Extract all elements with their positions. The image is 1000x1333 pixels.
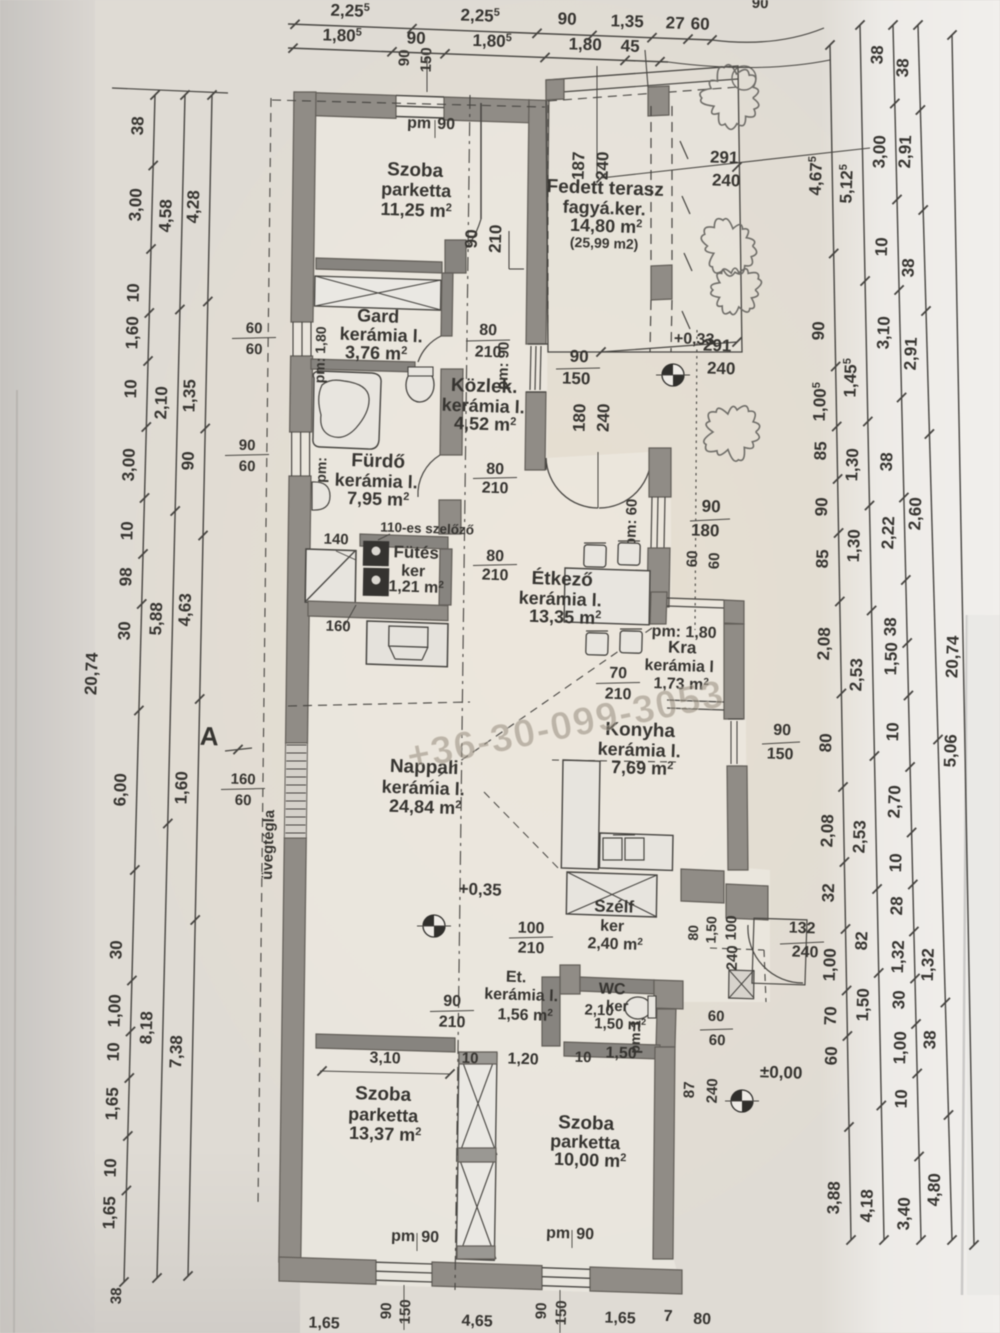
svg-text:1,35: 1,35 (179, 379, 199, 413)
svg-text:2,22: 2,22 (878, 516, 898, 550)
svg-text:10: 10 (104, 1042, 124, 1062)
svg-text:80: 80 (693, 1311, 711, 1329)
svg-text:80: 80 (486, 548, 504, 566)
svg-text:pm: 1,80: pm: 1,80 (311, 326, 329, 384)
svg-text:80: 80 (479, 322, 497, 340)
svg-text:1,32: 1,32 (888, 940, 908, 974)
svg-text:3,76 m2: 3,76 m2 (345, 342, 408, 364)
svg-text:2,08: 2,08 (817, 814, 837, 848)
svg-text:85: 85 (811, 441, 831, 461)
svg-text:10: 10 (891, 1089, 911, 1109)
svg-text:90: 90 (239, 437, 256, 455)
svg-text:1,50: 1,50 (881, 642, 901, 676)
svg-text:60: 60 (246, 320, 263, 338)
svg-text:2,91: 2,91 (901, 337, 921, 371)
svg-text:1,00: 1,00 (890, 1031, 910, 1065)
svg-text:2,10: 2,10 (151, 386, 171, 420)
svg-text:1,60: 1,60 (171, 771, 191, 805)
svg-text:20,74: 20,74 (942, 635, 962, 679)
svg-text:10: 10 (462, 1050, 479, 1068)
svg-text:1,30: 1,30 (844, 529, 864, 563)
svg-text:11,25 m2: 11,25 m2 (380, 199, 452, 221)
svg-text:1,32: 1,32 (918, 948, 938, 982)
svg-text:150: 150 (562, 369, 591, 389)
svg-text:60: 60 (706, 552, 724, 569)
svg-text:(25,99 m2): (25,99 m2) (570, 234, 639, 252)
svg-text:70: 70 (821, 1006, 841, 1026)
svg-text:70: 70 (609, 665, 627, 683)
svg-text:90: 90 (443, 993, 461, 1011)
svg-text:1,65: 1,65 (102, 1087, 122, 1121)
svg-text:2,08: 2,08 (814, 627, 834, 661)
svg-text:pm: pm (407, 115, 432, 133)
svg-text:60: 60 (684, 550, 702, 567)
svg-text:2,60: 2,60 (905, 497, 925, 531)
svg-text:150: 150 (397, 1299, 415, 1325)
svg-text:WC: WC (599, 981, 627, 999)
svg-text:Fütés: Fütés (393, 542, 439, 562)
svg-text:210: 210 (482, 567, 509, 585)
svg-text:10: 10 (117, 521, 137, 541)
svg-text:5,06: 5,06 (940, 734, 960, 768)
svg-text:2,70: 2,70 (884, 785, 904, 819)
svg-text:A: A (199, 721, 219, 752)
svg-text:80: 80 (685, 925, 702, 941)
svg-text:10: 10 (101, 1158, 121, 1178)
svg-text:1,80: 1,80 (568, 34, 602, 54)
svg-text:pm:: pm: (313, 457, 330, 483)
svg-text:1,00: 1,00 (105, 994, 125, 1028)
svg-text:85: 85 (813, 549, 833, 569)
svg-text:160: 160 (230, 771, 256, 789)
svg-text:4,18: 4,18 (857, 1189, 877, 1223)
svg-text:210: 210 (518, 940, 545, 958)
svg-text:45: 45 (620, 36, 640, 56)
svg-text:90: 90 (752, 0, 769, 12)
svg-text:Et.: Et. (506, 969, 527, 987)
svg-text:2,91: 2,91 (895, 135, 915, 169)
svg-text:82: 82 (852, 931, 872, 951)
svg-text:1,65: 1,65 (99, 1196, 119, 1230)
svg-text:+0,33: +0,33 (674, 330, 715, 348)
svg-text:60: 60 (246, 341, 263, 359)
svg-text:87: 87 (681, 1081, 699, 1098)
svg-text:38: 38 (893, 58, 913, 78)
svg-text:27: 27 (665, 13, 685, 33)
svg-text:60: 60 (239, 458, 256, 476)
svg-text:240: 240 (792, 944, 819, 962)
svg-text:60: 60 (708, 1008, 725, 1026)
svg-text:90: 90 (178, 451, 198, 471)
svg-text:240: 240 (724, 945, 742, 971)
svg-text:1,50: 1,50 (853, 988, 873, 1022)
svg-text:90: 90 (462, 229, 482, 249)
svg-text:38: 38 (877, 452, 897, 472)
svg-text:2,53: 2,53 (846, 658, 866, 692)
svg-text:Kra: Kra (668, 638, 698, 658)
svg-text:3,40: 3,40 (894, 1197, 914, 1231)
svg-text:210: 210 (439, 1014, 466, 1032)
svg-text:38: 38 (867, 45, 887, 65)
svg-text:10: 10 (883, 722, 903, 742)
svg-text:pm: pm (546, 1225, 571, 1243)
svg-text:210: 210 (486, 224, 506, 253)
svg-text:1,20: 1,20 (507, 1050, 539, 1068)
svg-text:100: 100 (723, 915, 741, 941)
svg-text:+0,35: +0,35 (458, 879, 502, 899)
svg-text:38: 38 (920, 1030, 940, 1050)
svg-text:30: 30 (115, 621, 135, 641)
svg-text:80: 80 (486, 461, 504, 479)
svg-text:2,53: 2,53 (849, 820, 869, 854)
svg-text:4,65: 4,65 (461, 1312, 493, 1330)
svg-text:Szélf: Szélf (594, 896, 635, 916)
svg-text:30: 30 (889, 990, 909, 1010)
svg-text:90: 90 (406, 28, 426, 48)
svg-text:60: 60 (821, 1046, 841, 1066)
svg-text:30: 30 (106, 940, 126, 960)
svg-text:180: 180 (691, 521, 720, 541)
svg-text:90: 90 (533, 1302, 551, 1319)
svg-text:240: 240 (707, 359, 736, 379)
svg-text:10: 10 (123, 283, 143, 303)
svg-text:240: 240 (704, 1078, 722, 1104)
svg-text:180: 180 (570, 403, 590, 432)
svg-text:ker: ker (600, 918, 625, 936)
svg-text:132: 132 (789, 920, 816, 938)
svg-text:291: 291 (710, 148, 739, 168)
svg-text:38: 38 (128, 116, 148, 136)
svg-text:Szoba: Szoba (355, 1083, 412, 1106)
svg-text:4,28: 4,28 (183, 190, 203, 224)
svg-text:3,00: 3,00 (126, 188, 146, 222)
svg-text:pm: 60: pm: 60 (622, 498, 641, 547)
svg-text:150: 150 (767, 746, 794, 764)
svg-text:1,30: 1,30 (842, 448, 862, 482)
svg-text:7,95 m2: 7,95 m2 (347, 488, 410, 510)
svg-text:110-es szelőző: 110-es szelőző (380, 519, 474, 537)
svg-text:90: 90 (812, 497, 832, 517)
svg-text:kerámia l: kerámia l (644, 657, 714, 676)
svg-text:±0,00: ±0,00 (760, 1062, 803, 1082)
svg-text:38: 38 (898, 258, 918, 278)
svg-text:28: 28 (887, 896, 907, 916)
svg-text:24,84 m2: 24,84 m2 (389, 796, 462, 818)
svg-text:5,88: 5,88 (146, 602, 166, 636)
svg-text:3,00: 3,00 (869, 135, 889, 169)
svg-text:4,58: 4,58 (156, 199, 176, 233)
svg-text:60: 60 (235, 792, 252, 810)
svg-text:1,35: 1,35 (610, 11, 644, 31)
svg-text:8,18: 8,18 (136, 1011, 156, 1045)
svg-text:13,35 m2: 13,35 m2 (529, 606, 602, 628)
svg-text:3,10: 3,10 (369, 1049, 401, 1067)
svg-text:1,21 m2: 1,21 m2 (388, 578, 444, 597)
svg-text:1,60: 1,60 (122, 316, 142, 350)
svg-text:10: 10 (121, 379, 141, 399)
svg-text:90: 90 (421, 1229, 439, 1247)
svg-text:10,00 m2: 10,00 m2 (554, 1149, 627, 1171)
svg-text:7,38: 7,38 (166, 1035, 186, 1069)
svg-text:pm: pm (391, 1228, 416, 1246)
svg-text:13,37 m2: 13,37 m2 (349, 1123, 422, 1145)
svg-text:210: 210 (482, 480, 509, 498)
svg-text:90: 90 (576, 1226, 594, 1244)
svg-text:1,65: 1,65 (308, 1314, 340, 1332)
svg-text:parketta: parketta (381, 179, 453, 201)
svg-text:2,40 m2: 2,40 m2 (587, 935, 643, 954)
svg-text:90: 90 (437, 116, 455, 134)
svg-text:7: 7 (663, 1308, 673, 1325)
svg-text:90: 90 (701, 497, 721, 517)
svg-text:10: 10 (886, 853, 906, 873)
svg-text:4,80: 4,80 (924, 1173, 944, 1207)
svg-text:3,88: 3,88 (824, 1181, 844, 1215)
svg-text:1,56 m2: 1,56 m2 (497, 1006, 553, 1025)
svg-text:1,50: 1,50 (703, 916, 720, 944)
svg-text:3,00: 3,00 (119, 448, 139, 482)
svg-text:6,00: 6,00 (110, 773, 130, 807)
svg-text:90: 90 (557, 9, 577, 29)
svg-text:3,10: 3,10 (874, 316, 894, 350)
svg-text:90: 90 (809, 321, 829, 341)
svg-text:90: 90 (569, 347, 589, 367)
svg-text:7,69 m2: 7,69 m2 (611, 757, 674, 779)
svg-text:240: 240 (712, 171, 741, 191)
svg-text:pm: 90: pm: 90 (494, 341, 513, 390)
svg-text:20,74: 20,74 (81, 652, 101, 696)
svg-text:240: 240 (594, 403, 614, 432)
svg-text:240: 240 (593, 151, 613, 180)
svg-text:4,63: 4,63 (175, 593, 195, 627)
svg-text:kerámia l.: kerámia l. (484, 986, 558, 1005)
svg-text:38: 38 (881, 617, 901, 637)
svg-text:60: 60 (709, 1032, 726, 1050)
svg-text:90: 90 (773, 722, 791, 740)
svg-text:100: 100 (518, 920, 545, 938)
svg-text:1,50: 1,50 (605, 1044, 637, 1062)
svg-text:140: 140 (323, 531, 349, 549)
svg-text:2,10: 2,10 (584, 1002, 614, 1020)
svg-text:60: 60 (690, 14, 710, 34)
svg-text:38: 38 (108, 1287, 126, 1304)
svg-text:1,65: 1,65 (604, 1309, 636, 1327)
svg-text:1,00: 1,00 (820, 948, 840, 982)
svg-text:90: 90 (378, 1302, 396, 1319)
svg-text:150: 150 (418, 47, 436, 73)
svg-text:80: 80 (816, 733, 836, 753)
svg-text:32: 32 (819, 883, 839, 903)
svg-text:4,52 m2: 4,52 m2 (454, 413, 517, 435)
svg-text:10: 10 (872, 237, 892, 257)
svg-text:10: 10 (575, 1049, 592, 1067)
svg-text:150: 150 (553, 1300, 571, 1326)
svg-text:98: 98 (116, 567, 136, 587)
